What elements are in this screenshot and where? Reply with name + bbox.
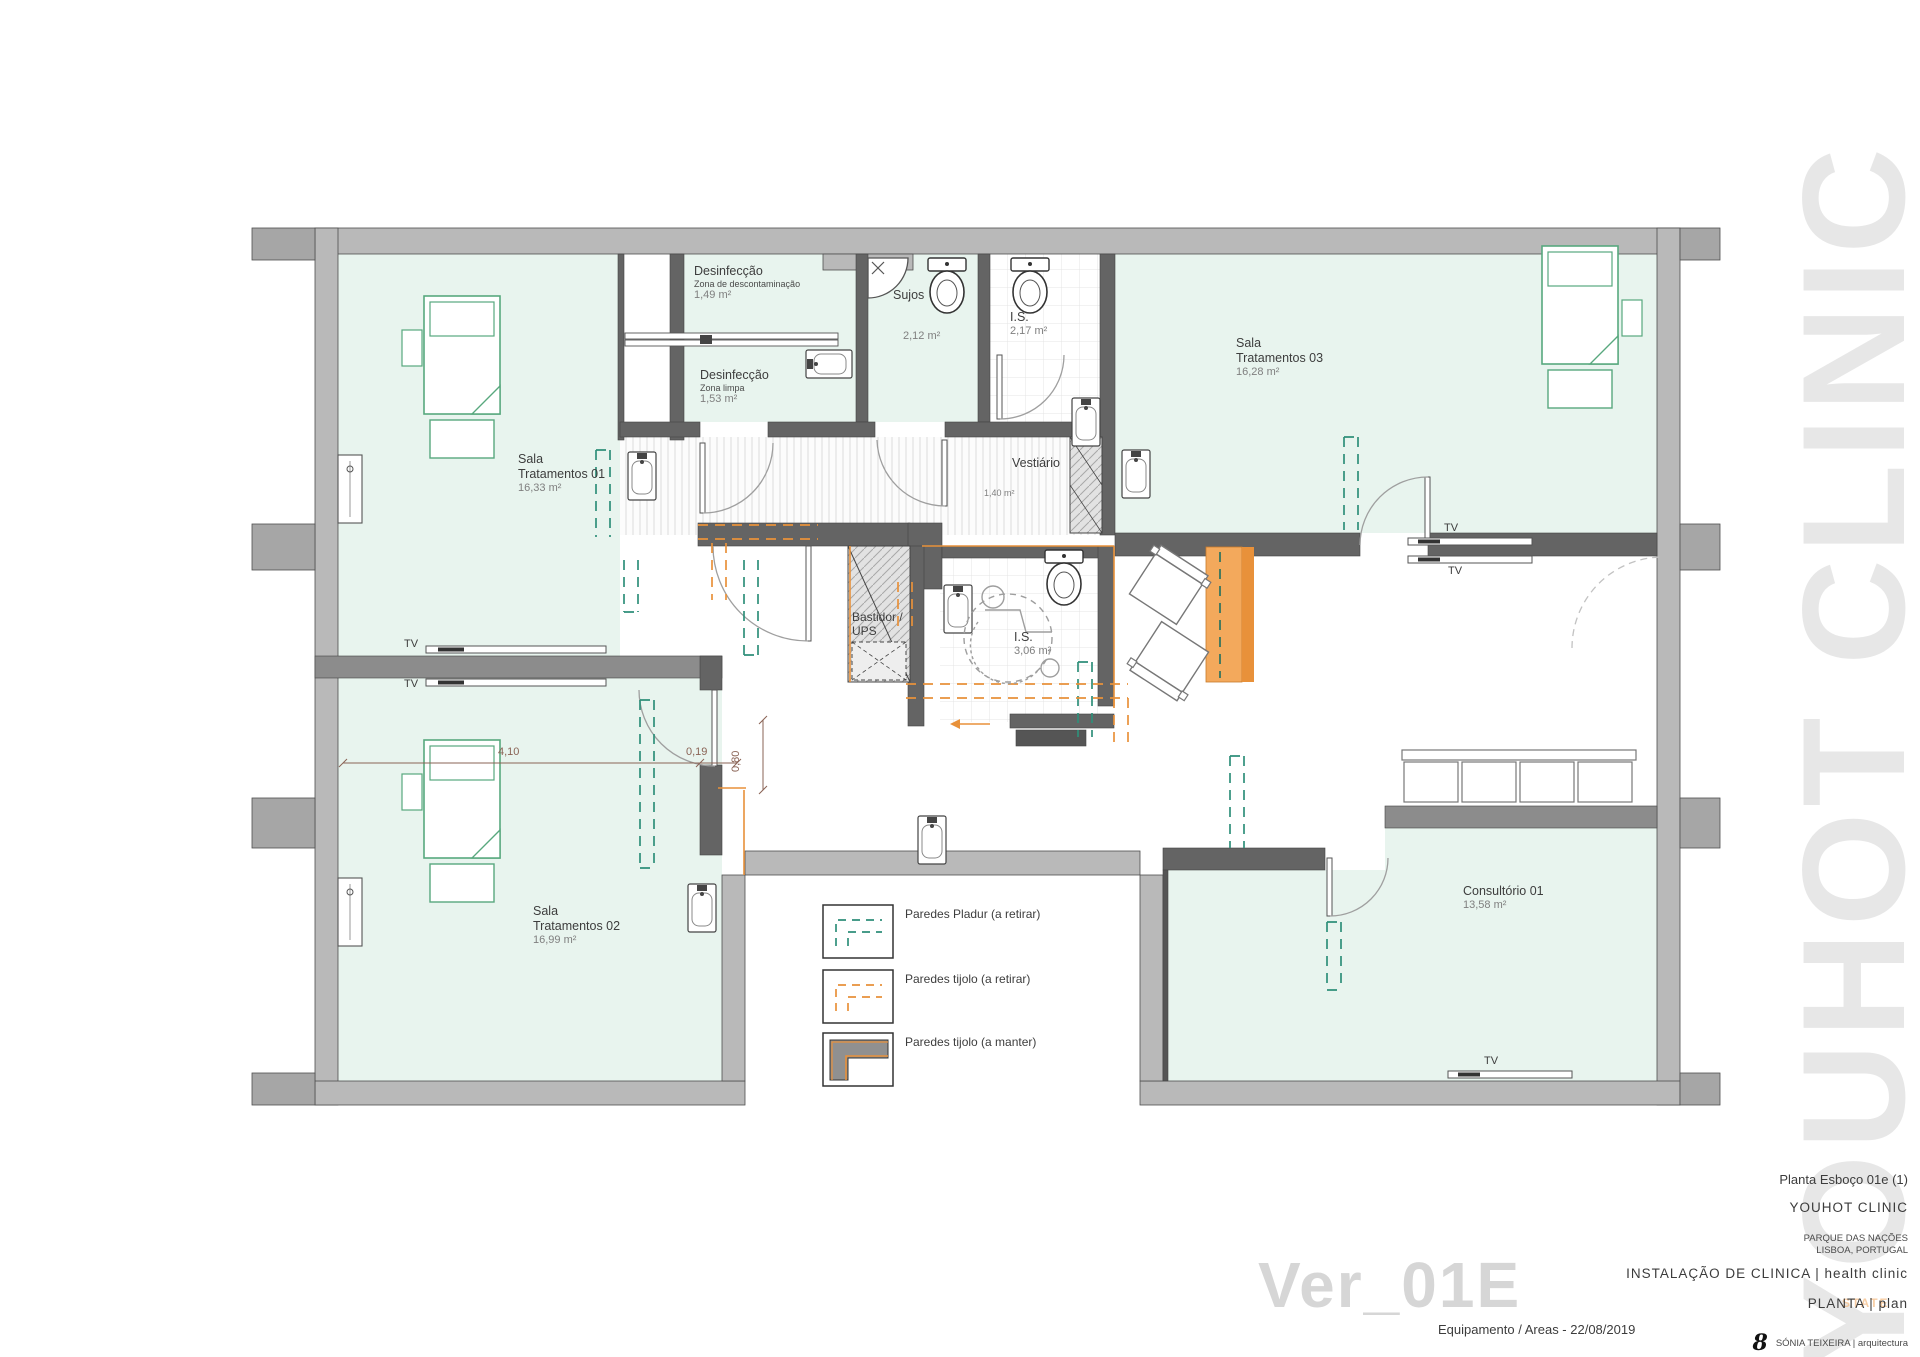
radiator-icon — [338, 878, 362, 946]
tv-label: TV — [404, 638, 418, 650]
room-area-sujos: 2,12 m² — [903, 330, 940, 343]
furniture-chairs — [1124, 542, 1636, 802]
sink-icon — [628, 452, 656, 500]
sink-icon — [1072, 398, 1100, 446]
side-table — [402, 774, 422, 810]
phase-date: Equipamento / Areas - 22/08/2019 — [1438, 1322, 1635, 1337]
chair-icon — [1125, 618, 1214, 704]
location-line1: PARQUE DAS NAÇÕES — [1470, 1233, 1908, 1244]
legend-item-tijolo-remove: Paredes tijolo (a retirar) — [905, 972, 1030, 986]
legend-swatches — [823, 905, 893, 1086]
sink-icon — [918, 816, 946, 864]
waiting-row-chairs — [1402, 750, 1636, 802]
sink-icon — [944, 585, 972, 633]
radiator-icon — [338, 455, 362, 523]
room-label-is-small: I.S. 2,17 m² — [1010, 310, 1047, 338]
treatment-bed — [424, 740, 500, 902]
room-label-sujos: Sujos — [893, 288, 924, 303]
sink-icon — [806, 350, 852, 378]
project-title: INSTALAÇÃO DE CLINICA | health clinic — [1470, 1266, 1908, 1281]
room-label-sala-tratamentos-03: Sala Tratamentos 03 16,28 m² — [1236, 336, 1323, 378]
drawing-type: PLANTA | plan — [1470, 1296, 1908, 1311]
architect-name: SÓNIA TEIXEIRA | arquitectura — [1776, 1338, 1908, 1349]
tv-label: TV — [404, 678, 418, 690]
sink-icon — [1122, 450, 1150, 498]
side-table — [402, 330, 422, 366]
room-label-is-large: I.S. 3,06 m² — [1014, 630, 1051, 658]
room-area-vestiario: 1,40 m² — [984, 488, 1015, 499]
tv-label: TV — [1448, 565, 1462, 577]
legend-item-tijolo-keep: Paredes tijolo (a manter) — [905, 1035, 1036, 1049]
room-label-sala-tratamentos-02: Sala Tratamentos 02 16,99 m² — [533, 904, 620, 946]
room-label-vestiario: Vestiário — [1012, 456, 1060, 471]
toilet-icon — [1045, 550, 1083, 605]
client-name: YOUHOT CLINIC — [1470, 1200, 1908, 1215]
sheet-name: Planta Esboço 01e (1) — [1470, 1172, 1908, 1187]
tv-label: TV — [1444, 522, 1458, 534]
dimension-label-main: 4,10 — [498, 746, 519, 758]
room-label-sala-tratamentos-01: Sala Tratamentos 01 16,33 m² — [518, 452, 605, 494]
floor-plan-canvas — [0, 0, 1920, 1357]
room-label-bastidor-ups: Bastidor / UPS — [852, 610, 903, 638]
side-table — [1622, 300, 1642, 336]
legend-item-pladur-remove: Paredes Pladur (a retirar) — [905, 907, 1040, 921]
architect-logo-icon: 8 — [1753, 1330, 1768, 1356]
room-label-desinfeccao-descontaminacao: Desinfecção Zona de descontaminação 1,49… — [694, 264, 800, 302]
sink-icon — [688, 884, 716, 932]
tv-label: TV — [1484, 1055, 1498, 1067]
locker-closet — [1070, 437, 1102, 533]
room-label-desinfeccao-zona-limpa: Desinfecção Zona limpa 1,53 m² — [700, 368, 769, 406]
toilet-icon — [928, 258, 966, 313]
future-door-arc — [1572, 557, 1663, 648]
treatment-bed — [424, 296, 500, 458]
new-orange-wall — [1206, 547, 1254, 682]
treatment-bed — [1542, 246, 1618, 408]
floor-plan-sheet: YOUHOT CLINIC Ver_01E STATE — [0, 0, 1920, 1357]
location-line2: LISBOA, PORTUGAL — [1470, 1245, 1908, 1256]
dimension-label-small: 0,19 — [686, 746, 707, 758]
dimension-label-vertical: 0,80 — [730, 751, 742, 772]
toilet-icon — [1011, 258, 1049, 313]
room-label-consultorio-01: Consultório 01 13,58 m² — [1463, 884, 1544, 912]
